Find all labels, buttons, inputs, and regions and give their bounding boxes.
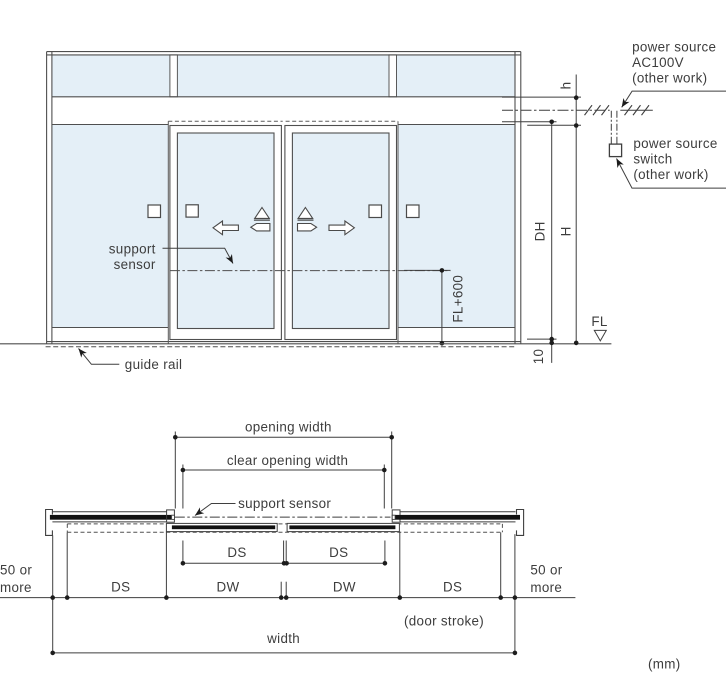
svg-text:(mm): (mm): [648, 656, 681, 671]
svg-text:H: H: [558, 226, 573, 236]
svg-text:guide rail: guide rail: [125, 357, 183, 372]
svg-text:50 or: 50 or: [530, 563, 562, 578]
svg-text:DS: DS: [443, 580, 462, 595]
svg-text:DW: DW: [217, 580, 240, 595]
svg-text:FL: FL: [591, 314, 607, 329]
svg-text:opening width: opening width: [245, 420, 332, 435]
svg-text:power source: power source: [632, 40, 716, 55]
svg-text:more: more: [0, 580, 32, 595]
svg-text:h: h: [558, 82, 573, 90]
svg-text:10: 10: [531, 349, 546, 365]
svg-text:width: width: [266, 631, 300, 646]
svg-text:FL+600: FL+600: [450, 275, 465, 323]
svg-text:(other work): (other work): [632, 71, 707, 86]
svg-text:DS: DS: [227, 545, 246, 560]
svg-text:AC100V: AC100V: [632, 55, 684, 70]
svg-text:switch: switch: [633, 151, 672, 166]
svg-text:DS: DS: [111, 580, 130, 595]
svg-text:support: support: [109, 242, 156, 257]
svg-text:(other work): (other work): [633, 167, 708, 182]
svg-text:more: more: [530, 580, 562, 595]
svg-text:sensor: sensor: [114, 257, 156, 272]
svg-text:power source: power source: [633, 136, 717, 151]
svg-text:support sensor: support sensor: [238, 496, 331, 511]
svg-text:50 or: 50 or: [0, 563, 32, 578]
svg-text:DH: DH: [533, 221, 548, 241]
svg-text:DS: DS: [329, 545, 348, 560]
svg-text:(door stroke): (door stroke): [404, 613, 484, 628]
svg-text:clear opening width: clear opening width: [227, 453, 348, 468]
svg-text:DW: DW: [333, 580, 356, 595]
